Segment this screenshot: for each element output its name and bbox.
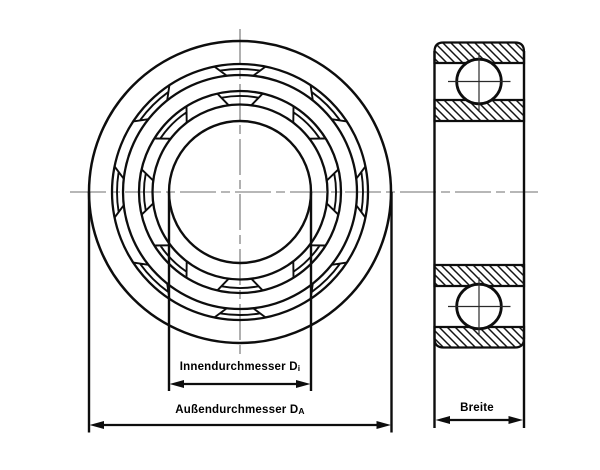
section-view — [435, 43, 525, 429]
outer-diameter-label-text: Außendurchmesser D — [175, 404, 298, 416]
width-dim-arrow-right — [509, 416, 524, 424]
inner-diameter-label: Innendurchmesser Di — [180, 361, 301, 375]
diagram-canvas — [0, 0, 600, 470]
inner-diameter-label-subscript: i — [298, 363, 301, 373]
outer-dim-arrow-left — [90, 421, 105, 429]
inner-dim-arrow-right — [296, 380, 311, 388]
inner-diameter-label-text: Innendurchmesser D — [180, 361, 298, 373]
width-label: Breite — [460, 402, 494, 416]
width-label-text: Breite — [460, 402, 494, 414]
outer-diameter-label-subscript: A — [298, 406, 304, 416]
width-dimension — [436, 416, 524, 424]
outer-dim-arrow-right — [377, 421, 392, 429]
inner-dim-arrow-left — [170, 380, 185, 388]
width-dim-arrow-left — [436, 416, 451, 424]
outer-diameter-label: Außendurchmesser DA — [175, 404, 304, 418]
bearing-diagram: Innendurchmesser Di Außendurchmesser DA … — [0, 0, 600, 470]
